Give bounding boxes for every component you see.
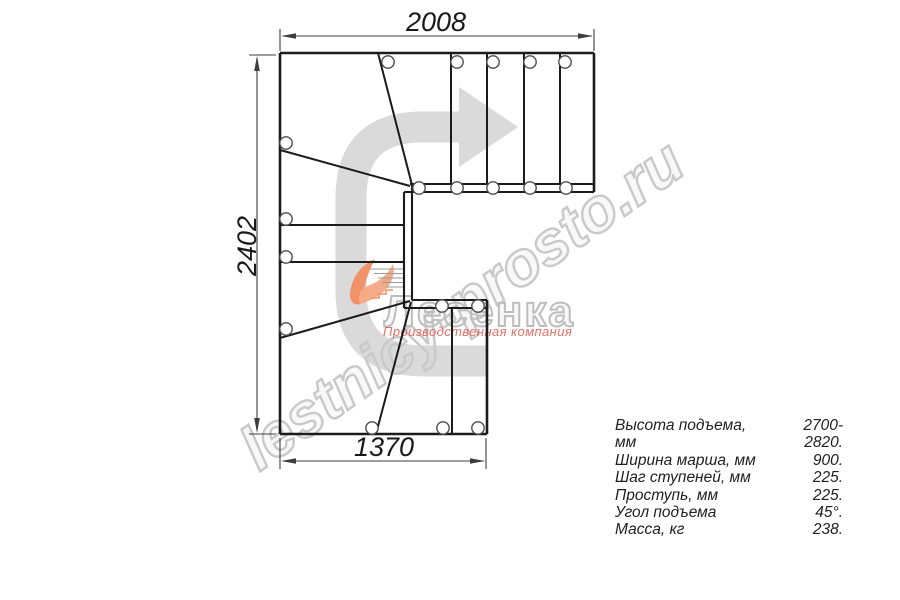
spec-value: 45°. bbox=[815, 504, 843, 521]
spec-label: Масса, кг bbox=[615, 521, 684, 538]
dimension-lines bbox=[249, 29, 594, 469]
spec-label: Высота подъема, мм bbox=[615, 417, 767, 452]
spec-label: Ширина марша, мм bbox=[615, 452, 756, 469]
spec-row: Масса, кг 238. bbox=[615, 521, 843, 538]
spec-row: Шаг ступеней, мм 225. bbox=[615, 469, 843, 486]
winder-lines bbox=[280, 53, 412, 434]
specs-table: Высота подъема, мм 2700-2820. Ширина мар… bbox=[615, 417, 843, 539]
bolt-holes bbox=[280, 56, 572, 434]
left-dimension-value: 2402 bbox=[232, 216, 262, 277]
spec-row: Проступь, мм 225. bbox=[615, 487, 843, 504]
step-lines bbox=[280, 53, 560, 434]
spec-label: Проступь, мм bbox=[615, 487, 718, 504]
spec-value: 225. bbox=[813, 469, 843, 486]
spec-value: 225. bbox=[813, 487, 843, 504]
spec-row: Высота подъема, мм 2700-2820. bbox=[615, 417, 843, 452]
staircase-plan-drawing: lestnicy-prosto.ru Лесенка Производствен… bbox=[0, 0, 900, 600]
top-dimension-value: 2008 bbox=[405, 7, 466, 37]
spec-value: 238. bbox=[813, 521, 843, 538]
spec-label: Шаг ступеней, мм bbox=[615, 469, 751, 486]
bottom-dimension-value: 1370 bbox=[354, 432, 414, 462]
spec-value: 900. bbox=[813, 452, 843, 469]
spec-label: Угол подъема bbox=[615, 504, 716, 521]
spec-row: Ширина марша, мм 900. bbox=[615, 452, 843, 469]
spec-row: Угол подъема 45°. bbox=[615, 504, 843, 521]
dimension-arrowheads bbox=[254, 33, 593, 464]
spec-value: 2700-2820. bbox=[767, 417, 843, 452]
stringer-strips bbox=[404, 184, 594, 308]
stair-outline bbox=[280, 53, 594, 434]
